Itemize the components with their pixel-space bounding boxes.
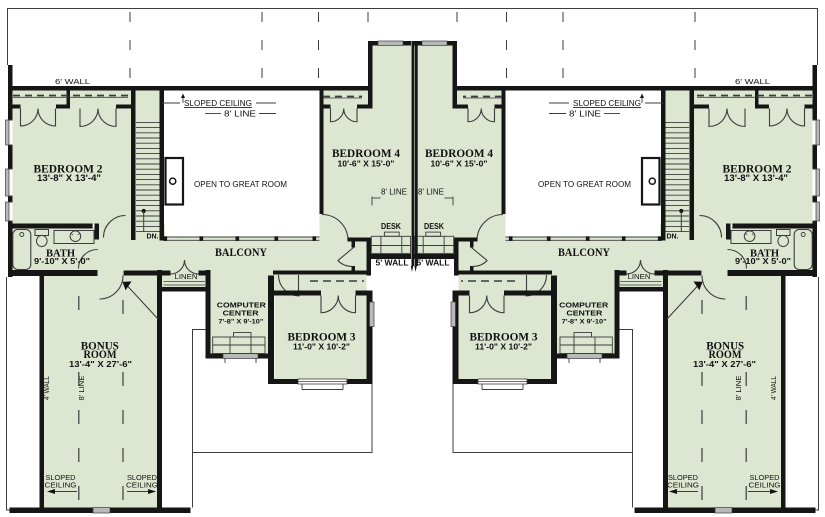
svg-text:4' WALL: 4' WALL [771,376,778,400]
svg-text:6' WALL: 6' WALL [55,77,90,86]
svg-text:10'-6" X 15'-0": 10'-6" X 15'-0" [431,159,488,169]
svg-text:8' LINE: 8' LINE [418,188,444,197]
svg-text:CEILING: CEILING [749,481,781,490]
svg-text:13'-4" X 27'-6": 13'-4" X 27'-6" [693,359,756,369]
svg-text:9'-10" X 5'-0": 9'-10" X 5'-0" [735,257,791,266]
svg-text:LINEN: LINEN [175,272,198,281]
svg-text:13'-4" X 27'-6": 13'-4" X 27'-6" [69,359,132,369]
svg-text:OPEN TO GREAT ROOM: OPEN TO GREAT ROOM [538,179,631,189]
svg-text:8' LINE: 8' LINE [381,188,407,197]
svg-text:CENTER: CENTER [566,309,603,318]
svg-text:CEILING: CEILING [126,481,158,490]
svg-text:4' WALL: 4' WALL [44,376,51,400]
svg-text:5' WALL: 5' WALL [417,259,450,268]
svg-text:DESK: DESK [381,222,401,231]
svg-text:BALCONY: BALCONY [215,245,267,259]
svg-text:11'-0" X 10'-2": 11'-0" X 10'-2" [475,342,532,352]
svg-text:SLOPED CEILING: SLOPED CEILING [573,99,641,108]
svg-text:13'-8" X 13'-4": 13'-8" X 13'-4" [724,173,788,183]
svg-text:DN.: DN. [147,234,159,241]
svg-text:6' WALL: 6' WALL [735,77,770,86]
svg-text:8' LINE: 8' LINE [79,375,86,400]
svg-text:CEILING: CEILING [667,481,699,490]
svg-text:9'-10" X 5'-0": 9'-10" X 5'-0" [34,257,90,266]
svg-text:DESK: DESK [424,222,444,231]
svg-text:SLOPED CEILING: SLOPED CEILING [184,99,252,108]
svg-text:LINEN: LINEN [628,272,651,281]
svg-text:DN.: DN. [667,234,679,241]
svg-text:13'-8" X 13'-4": 13'-8" X 13'-4" [37,173,101,183]
svg-text:BALCONY: BALCONY [558,245,610,259]
svg-text:8' LINE: 8' LINE [569,110,601,119]
svg-text:CENTER: CENTER [223,309,260,318]
svg-text:CEILING: CEILING [45,481,77,490]
svg-text:10'-6" X 15'-0": 10'-6" X 15'-0" [338,159,395,169]
svg-text:8' LINE: 8' LINE [736,375,743,400]
svg-text:OPEN TO GREAT ROOM: OPEN TO GREAT ROOM [194,179,287,189]
svg-text:5' WALL: 5' WALL [376,259,409,268]
svg-text:7'-8" X 9'-10": 7'-8" X 9'-10" [562,319,607,326]
svg-text:7'-8" X 9'-10": 7'-8" X 9'-10" [218,319,263,326]
svg-text:11'-0" X 10'-2": 11'-0" X 10'-2" [293,342,350,352]
svg-text:8' LINE: 8' LINE [224,110,256,119]
